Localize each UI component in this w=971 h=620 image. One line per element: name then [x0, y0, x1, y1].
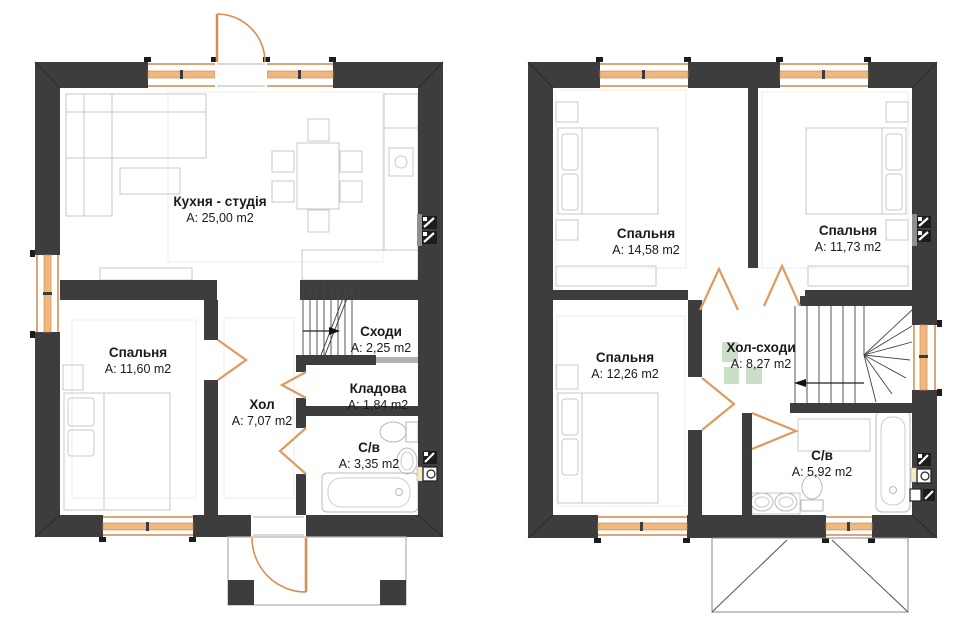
window — [99, 515, 196, 542]
bed — [556, 365, 658, 503]
canopy-roof — [712, 538, 908, 612]
bed — [806, 102, 908, 286]
porch-door — [251, 515, 306, 592]
front-door — [215, 14, 267, 88]
room-name: Спальня — [105, 344, 171, 361]
room-label-bathroom-1: С/в A: 3,35 m2 — [339, 439, 399, 472]
room-name: Спальня — [612, 225, 679, 242]
room-area: A: 8,27 m2 — [726, 356, 795, 372]
window — [594, 515, 690, 543]
room-area: A: 3,35 m2 — [339, 456, 399, 472]
room-area: A: 11,60 m2 — [105, 361, 171, 377]
porch — [228, 537, 406, 605]
room-label-bathroom-2: С/в A: 5,92 m2 — [792, 447, 852, 480]
bathtub — [322, 473, 418, 512]
sink — [751, 493, 797, 511]
room-area: A: 12,26 m2 — [591, 366, 658, 382]
vent-shaft — [917, 216, 931, 228]
toilet — [801, 475, 823, 511]
floor1-doors — [215, 14, 306, 592]
floor2-furniture — [556, 102, 910, 514]
bathtub — [876, 411, 910, 512]
door-swing — [702, 378, 734, 430]
vent-shaft — [422, 216, 437, 229]
room-name: С/в — [792, 447, 852, 464]
door-swing — [700, 269, 738, 310]
room-name: Хол — [232, 396, 292, 413]
room-label-kitchen-studio: Кухня - студія A: 25,00 m2 — [173, 193, 266, 226]
floor2-staircase — [794, 306, 912, 403]
room-name: Сходи — [351, 323, 411, 340]
bed — [63, 365, 170, 510]
room-label-bedroom-3: Спальня A: 11,73 m2 — [815, 222, 881, 255]
room-label-bedroom-4: Спальня A: 12,26 m2 — [591, 349, 658, 382]
sink — [397, 448, 417, 474]
room-area: A: 5,92 m2 — [792, 464, 852, 480]
window — [822, 515, 875, 543]
kitchen-counter — [302, 94, 418, 280]
room-label-hall-stairs: Хол-сходи A: 8,27 m2 — [726, 339, 795, 372]
room-name: Кухня - студія — [173, 193, 266, 210]
bed — [556, 102, 658, 286]
room-label-bedroom-1: Спальня A: 11,60 m2 — [105, 344, 171, 377]
coffee-table — [120, 168, 180, 194]
vent-shaft — [422, 231, 437, 244]
room-area: A: 2,25 m2 — [351, 340, 411, 356]
door-swing — [764, 266, 800, 306]
room-label-hall: Хол A: 7,07 m2 — [232, 396, 292, 429]
window — [263, 57, 336, 88]
room-name: С/в — [339, 439, 399, 456]
window — [596, 57, 691, 88]
window — [30, 250, 60, 338]
tv-stand — [100, 268, 192, 280]
room-label-bedroom-2: Спальня A: 14,58 m2 — [612, 225, 679, 258]
room-area: A: 14,58 m2 — [612, 242, 679, 258]
room-name: Кладова — [348, 380, 408, 397]
room-name: Хол-сходи — [726, 339, 795, 356]
vent-shaft — [917, 230, 931, 242]
window — [912, 320, 942, 396]
window — [144, 57, 218, 88]
window — [776, 57, 871, 88]
room-area: A: 1,84 m2 — [348, 397, 408, 413]
dining-table — [272, 119, 362, 232]
room-label-stairs: Сходи A: 2,25 m2 — [351, 323, 411, 356]
room-area: A: 25,00 m2 — [173, 210, 266, 226]
floorplan-image: Кухня - студія A: 25,00 m2 Спальня A: 11… — [0, 0, 971, 620]
room-label-storage: Кладова A: 1,84 m2 — [348, 380, 408, 413]
room-area: A: 7,07 m2 — [232, 413, 292, 429]
room-area: A: 11,73 m2 — [815, 239, 881, 255]
floorplan-drawing — [0, 0, 971, 620]
room-name: Спальня — [591, 349, 658, 366]
door-swing — [752, 413, 796, 449]
room-name: Спальня — [815, 222, 881, 239]
